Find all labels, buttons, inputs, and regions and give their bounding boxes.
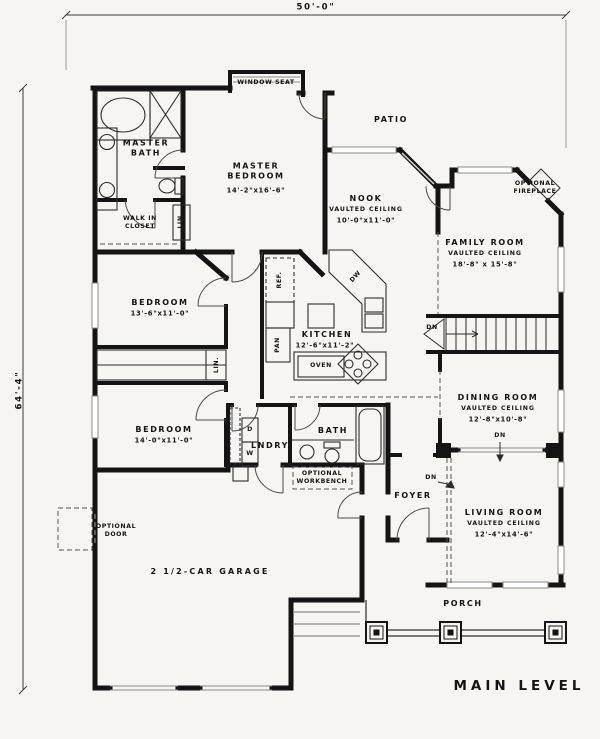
corner-counter bbox=[329, 250, 386, 332]
room-size-bedroom-front: 13'-6"x11'-0" bbox=[131, 310, 190, 319]
room-label-family-room: FAMILY ROOM bbox=[445, 238, 524, 248]
porch-posts bbox=[366, 622, 566, 643]
toilet bbox=[159, 179, 175, 193]
sink bbox=[100, 135, 115, 150]
room-label-master-bath: MASTER BATH bbox=[114, 139, 178, 160]
room-label-laundry: LNDRY bbox=[251, 441, 289, 451]
stairs-dn-label: DN bbox=[426, 324, 438, 332]
room-note-family-room: VAULTED CEILING bbox=[448, 250, 522, 258]
sink bbox=[365, 298, 383, 312]
sink bbox=[365, 314, 383, 328]
left-dimension-label: 64'-4" bbox=[14, 370, 25, 409]
linen-label-2: LIN. bbox=[213, 357, 221, 373]
porch-structure bbox=[293, 600, 563, 644]
room-label-living-room: LIVING ROOM bbox=[465, 508, 544, 518]
room-label-bedroom-rear: BEDROOM bbox=[135, 425, 192, 435]
room-label-dining-room: DINING ROOM bbox=[458, 393, 539, 403]
island bbox=[308, 304, 334, 328]
room-size-bedroom-rear: 14'-0"x11'-0" bbox=[135, 437, 194, 446]
room-label-garage: 2 1/2-CAR GARAGE bbox=[150, 567, 269, 577]
linen-label: LIN bbox=[177, 215, 185, 228]
room-label-bath: BATH bbox=[318, 426, 348, 436]
floor-plan-page: 50'-0" 64'-4" WINDOW SEAT MASTER BATH WA… bbox=[0, 0, 600, 739]
room-note-nook: VAULTED CEILING bbox=[329, 206, 403, 214]
room-size-family-room: 18'-8" x 15'-8" bbox=[453, 261, 518, 270]
sink bbox=[100, 183, 115, 198]
room-label-foyer: FOYER bbox=[394, 491, 431, 501]
toilet-tank bbox=[324, 442, 340, 448]
plan-title: MAIN LEVEL bbox=[454, 678, 585, 696]
room-label-master-bedroom: MASTER BEDROOM bbox=[214, 162, 298, 183]
stairs bbox=[424, 318, 546, 350]
optional-door-label: OPTIONAL DOOR bbox=[88, 523, 144, 539]
room-label-nook: NOOK bbox=[350, 194, 383, 204]
sink bbox=[300, 445, 314, 459]
refrigerator-label: REF. bbox=[276, 271, 284, 288]
water-heater bbox=[233, 467, 248, 481]
pantry-label: PAN bbox=[274, 337, 282, 353]
room-label-walk-in-closet: WALK IN CLOSET bbox=[109, 215, 171, 231]
room-size-master-bedroom: 14'-2"x16'-6" bbox=[227, 187, 286, 196]
dining-dn-label: DN bbox=[494, 432, 506, 440]
dryer-label: D bbox=[247, 426, 253, 434]
top-dimension-label: 50'-0" bbox=[296, 2, 335, 13]
room-note-living-room: VAULTED CEILING bbox=[467, 520, 541, 528]
room-note-dining-room: VAULTED CEILING bbox=[461, 405, 535, 413]
room-size-dining-room: 12'-8"x10'-8" bbox=[469, 416, 528, 425]
optional-door-outline bbox=[58, 508, 92, 550]
room-size-living-room: 12'-4"x14'-6" bbox=[475, 531, 534, 540]
optional-fireplace-label: OPTIONAL FIREPLACE bbox=[505, 180, 565, 196]
room-label-patio: PATIO bbox=[374, 115, 408, 125]
window-seat-label: WINDOW SEAT bbox=[237, 79, 295, 87]
room-label-porch: PORCH bbox=[443, 599, 482, 609]
room-size-nook: 10'-0"x11'-0" bbox=[337, 217, 396, 226]
toilet bbox=[325, 449, 339, 463]
room-label-bedroom-front: BEDROOM bbox=[131, 298, 188, 308]
foyer-dn-label: DN bbox=[425, 474, 437, 482]
room-size-kitchen: 12'-6"x11'-2" bbox=[296, 342, 355, 351]
optional-workbench-label: OPTIONAL WORKBENCH bbox=[286, 470, 358, 486]
counter bbox=[266, 302, 294, 328]
room-label-kitchen: KITCHEN bbox=[302, 330, 353, 340]
floor-plan-drawing bbox=[0, 0, 600, 739]
oven-label: OVEN bbox=[310, 362, 332, 370]
hall-tub bbox=[356, 406, 384, 464]
